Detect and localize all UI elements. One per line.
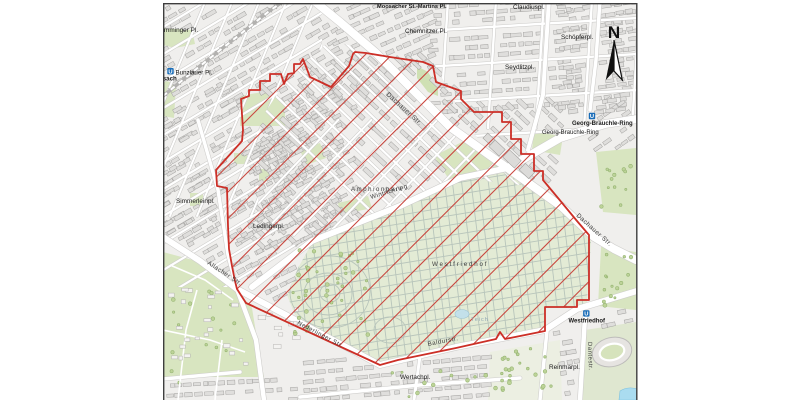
svg-text:Georg-Brauchle-Ring: Georg-Brauchle-Ring — [572, 121, 633, 127]
svg-text:Ledingerpl.: Ledingerpl. — [253, 223, 285, 230]
svg-text:Teich: Teich — [471, 317, 489, 323]
svg-text:Bunzlauer Pl.: Bunzlauer Pl. — [176, 69, 213, 76]
svg-text:Claudiuspl.: Claudiuspl. — [513, 4, 545, 11]
svg-text:N: N — [608, 23, 620, 42]
svg-text:U: U — [584, 312, 588, 318]
svg-text:Westfriedhof: Westfriedhof — [569, 319, 607, 325]
svg-text:Wertachpl.: Wertachpl. — [400, 374, 431, 381]
svg-text:Reinmarpl.: Reinmarpl. — [549, 364, 580, 371]
svg-text:U: U — [590, 114, 594, 120]
svg-text:U: U — [168, 69, 172, 75]
svg-text:Dantestr.: Dantestr. — [586, 342, 593, 371]
svg-text:Schöpferpl.: Schöpferpl. — [561, 34, 594, 41]
svg-text:Simmerleinpl.: Simmerleinpl. — [176, 198, 215, 205]
svg-text:Seydlitzpl.: Seydlitzpl. — [505, 64, 534, 71]
svg-text:mminger Pl.: mminger Pl. — [164, 27, 198, 34]
svg-text:Moosacher St.-Martins Pl.: Moosacher St.-Martins Pl. — [377, 4, 447, 10]
svg-text:Westfriedhof: Westfriedhof — [432, 261, 488, 268]
svg-text:Georg-Brauchle-Ring: Georg-Brauchle-Ring — [542, 130, 599, 136]
svg-text:Chemnitzer Pl.: Chemnitzer Pl. — [405, 28, 447, 35]
